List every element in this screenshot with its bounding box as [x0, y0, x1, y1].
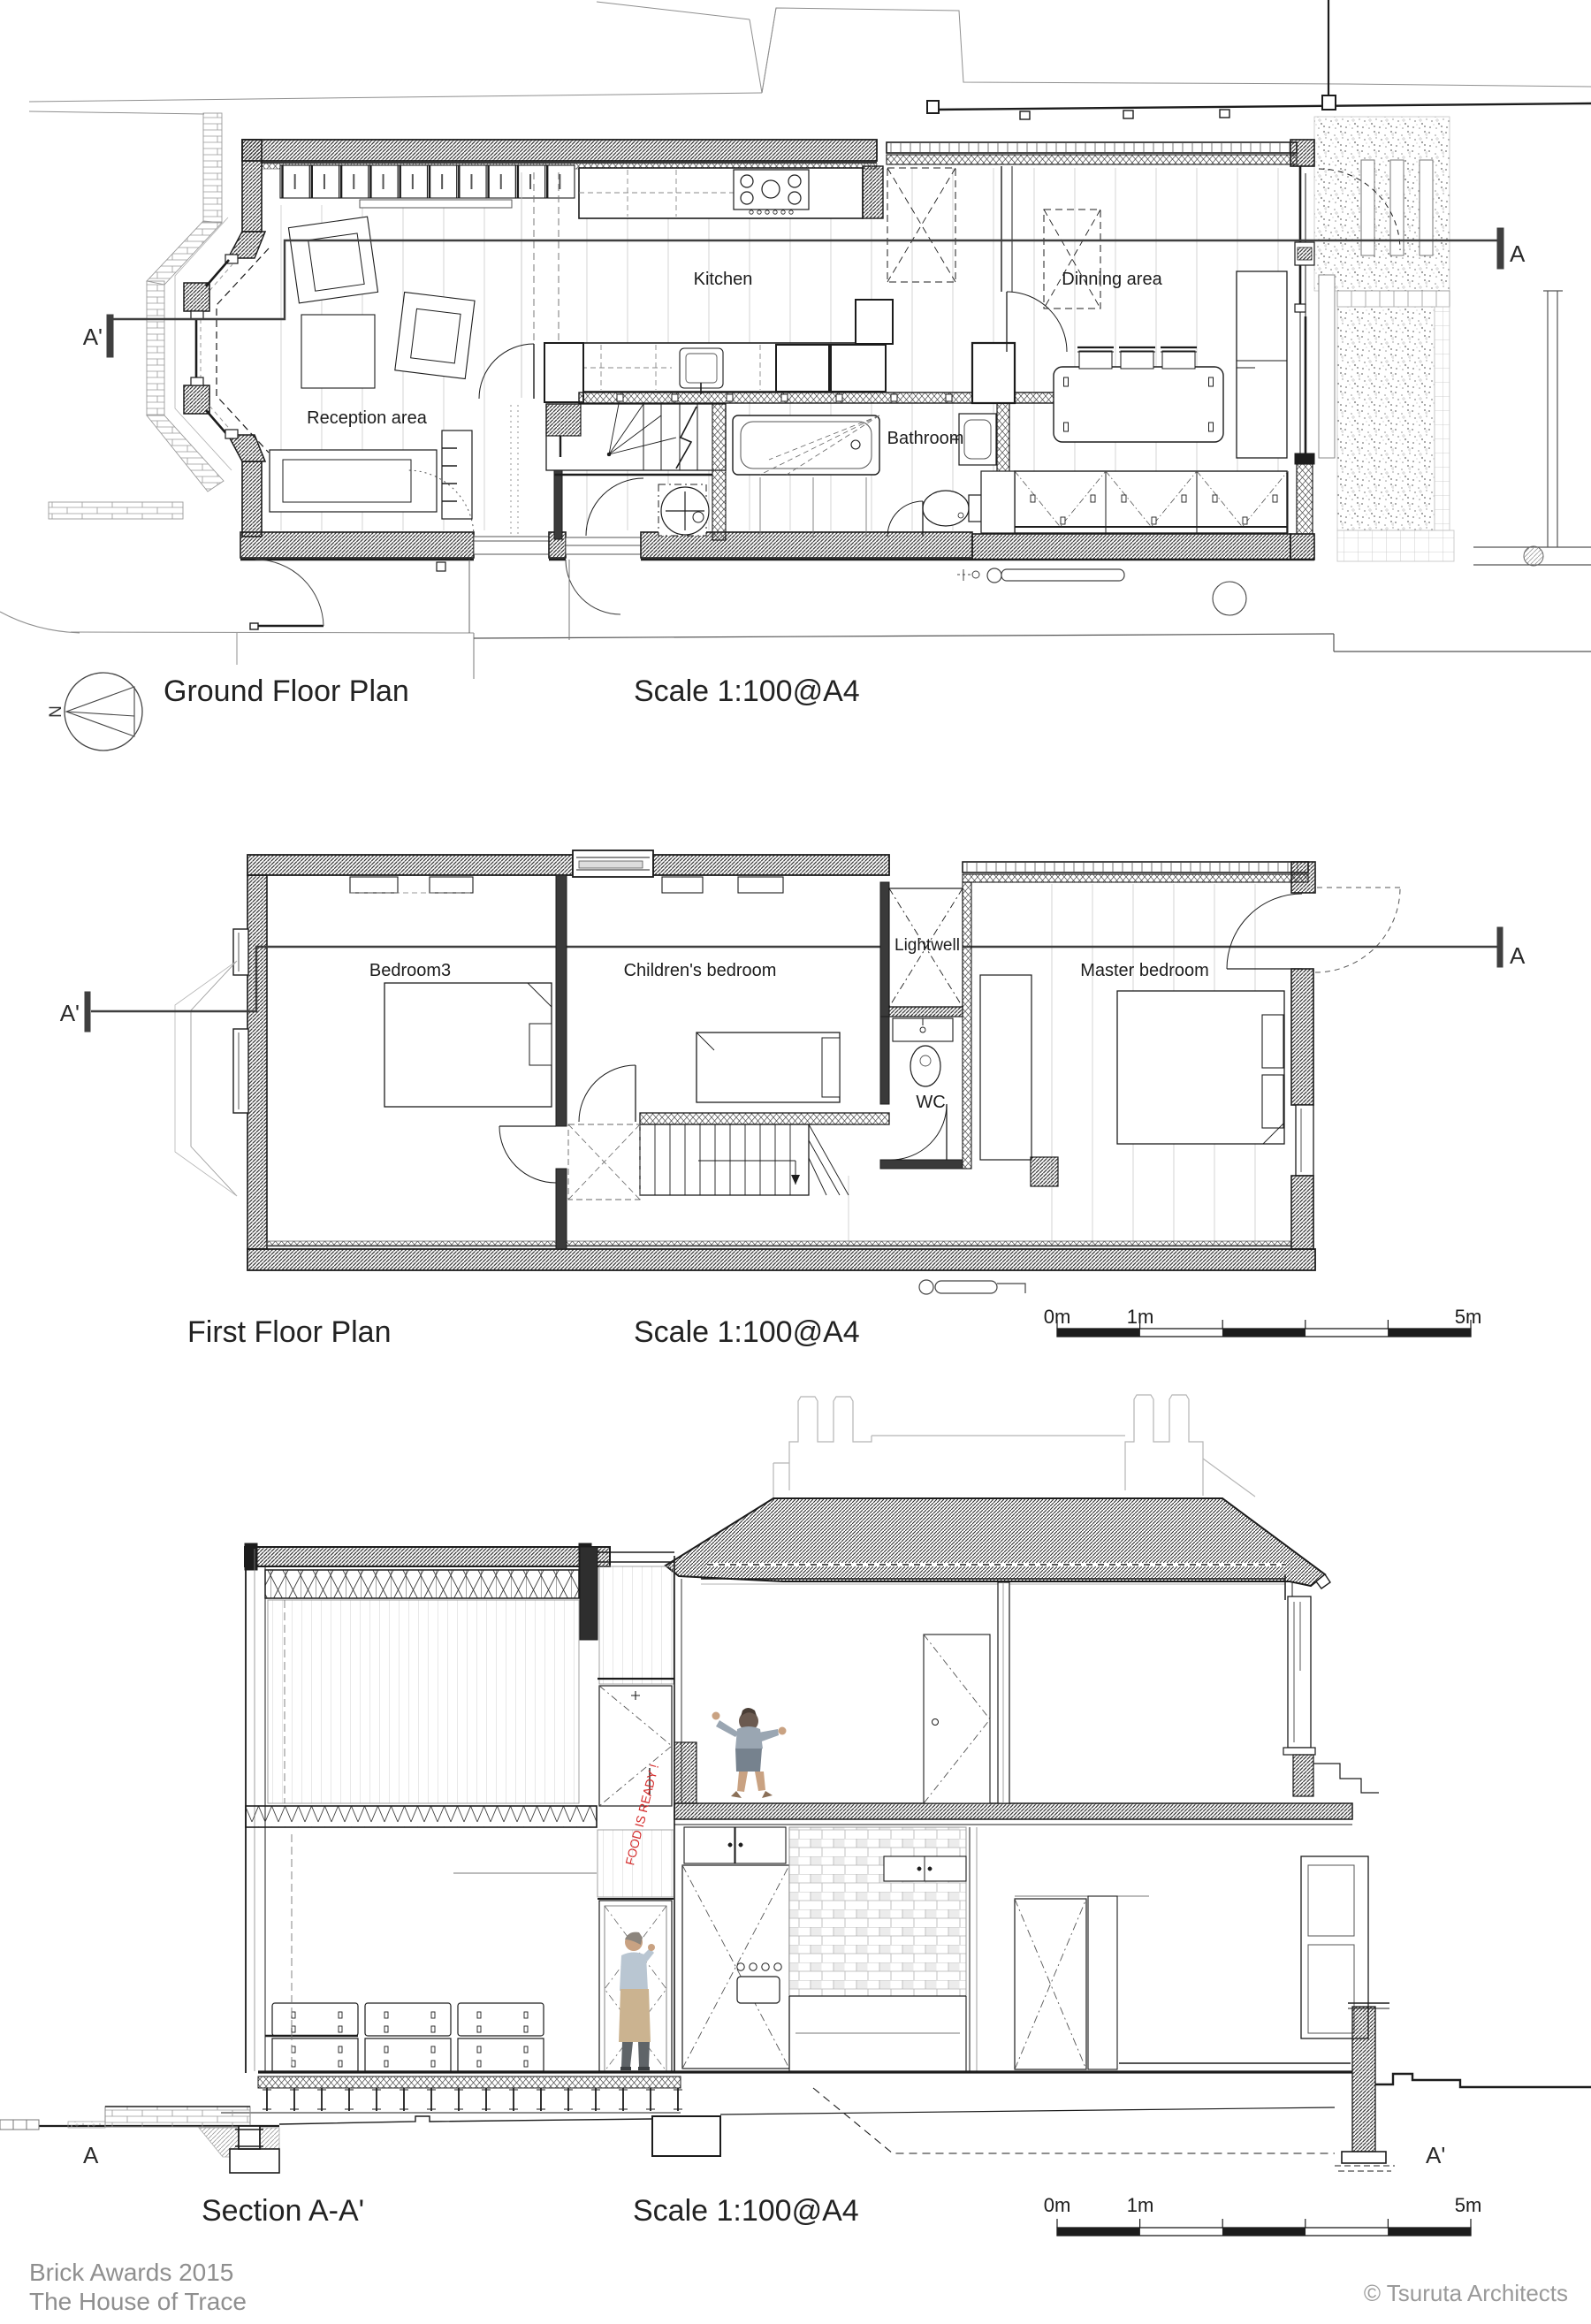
svg-text:Children's bedroom: Children's bedroom	[624, 961, 777, 980]
svg-text:Scale 1:100@A4: Scale 1:100@A4	[634, 674, 860, 708]
svg-text:Bedroom3: Bedroom3	[369, 961, 451, 980]
svg-text:5m: 5m	[1455, 1306, 1482, 1328]
svg-text:© Tsuruta Architects: © Tsuruta Architects	[1364, 2280, 1568, 2306]
svg-text:WC: WC	[916, 1093, 945, 1112]
svg-text:1m: 1m	[1127, 2194, 1154, 2216]
svg-text:Lightwell: Lightwell	[894, 936, 960, 955]
svg-text:The House of Trace: The House of Trace	[29, 2288, 247, 2315]
svg-text:Reception area: Reception area	[307, 408, 428, 428]
svg-text:Scale 1:100@A4: Scale 1:100@A4	[633, 2194, 859, 2228]
svg-text:5m: 5m	[1455, 2194, 1482, 2216]
svg-text:A': A'	[60, 1000, 80, 1026]
svg-text:Brick Awards 2015: Brick Awards 2015	[29, 2259, 233, 2286]
svg-text:Dinning area: Dinning area	[1062, 270, 1162, 289]
svg-text:0m: 0m	[1044, 1306, 1071, 1328]
svg-text:Kitchen: Kitchen	[694, 270, 753, 289]
svg-text:A': A'	[1426, 2142, 1445, 2168]
svg-text:Ground Floor Plan: Ground Floor Plan	[164, 674, 409, 708]
svg-text:A': A'	[83, 324, 103, 350]
svg-text:First Floor Plan: First Floor Plan	[187, 1315, 392, 1349]
svg-text:A: A	[1510, 240, 1526, 267]
svg-text:Section A-A': Section A-A'	[202, 2194, 364, 2228]
svg-text:A: A	[1510, 942, 1526, 969]
svg-text:1m: 1m	[1127, 1306, 1154, 1328]
svg-text:0m: 0m	[1044, 2194, 1071, 2216]
svg-text:N: N	[47, 705, 65, 718]
svg-text:Bathroom: Bathroom	[887, 429, 964, 448]
svg-text:Master bedroom: Master bedroom	[1080, 961, 1209, 980]
svg-text:Scale 1:100@A4: Scale 1:100@A4	[634, 1315, 860, 1349]
svg-text:A: A	[83, 2142, 99, 2168]
